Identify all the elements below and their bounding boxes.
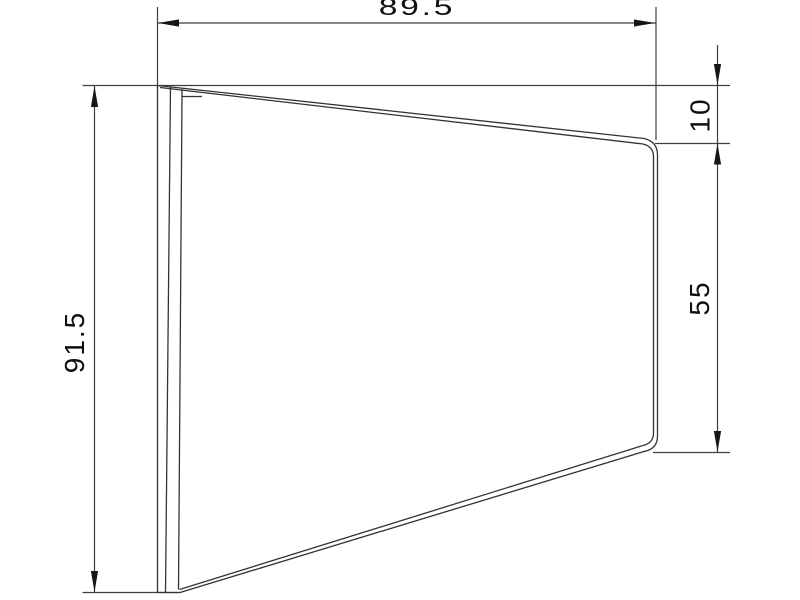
arrow-up-small-icon — [714, 144, 721, 165]
profile-left-inner-line — [166, 87, 171, 593]
arrow-down-small-icon — [714, 64, 721, 85]
dimension-label-offset-top-right: 10 — [688, 95, 714, 136]
drawing-canvas — [0, 0, 800, 600]
arrow-up-icon — [91, 86, 98, 107]
technical-drawing: 89.5 91.5 10 55 — [0, 0, 800, 600]
arrow-down-icon — [91, 571, 98, 592]
arrow-down-bottom-icon — [714, 431, 721, 452]
profile-shape — [158, 86, 658, 593]
profile-outer-contour — [158, 86, 658, 593]
dimension-label-edge-right: 55 — [687, 277, 713, 319]
arrow-right-icon — [634, 19, 655, 26]
dimension-arrows — [91, 19, 721, 592]
dimension-lines — [95, 23, 718, 593]
arrow-left-icon — [158, 19, 179, 26]
profile-inner-wall-line — [179, 97, 183, 590]
dimension-label-height-left: 91.5 — [62, 309, 88, 375]
profile-inner-contour — [160, 88, 654, 590]
dimension-label-width-top: 89.5 — [368, 0, 466, 21]
